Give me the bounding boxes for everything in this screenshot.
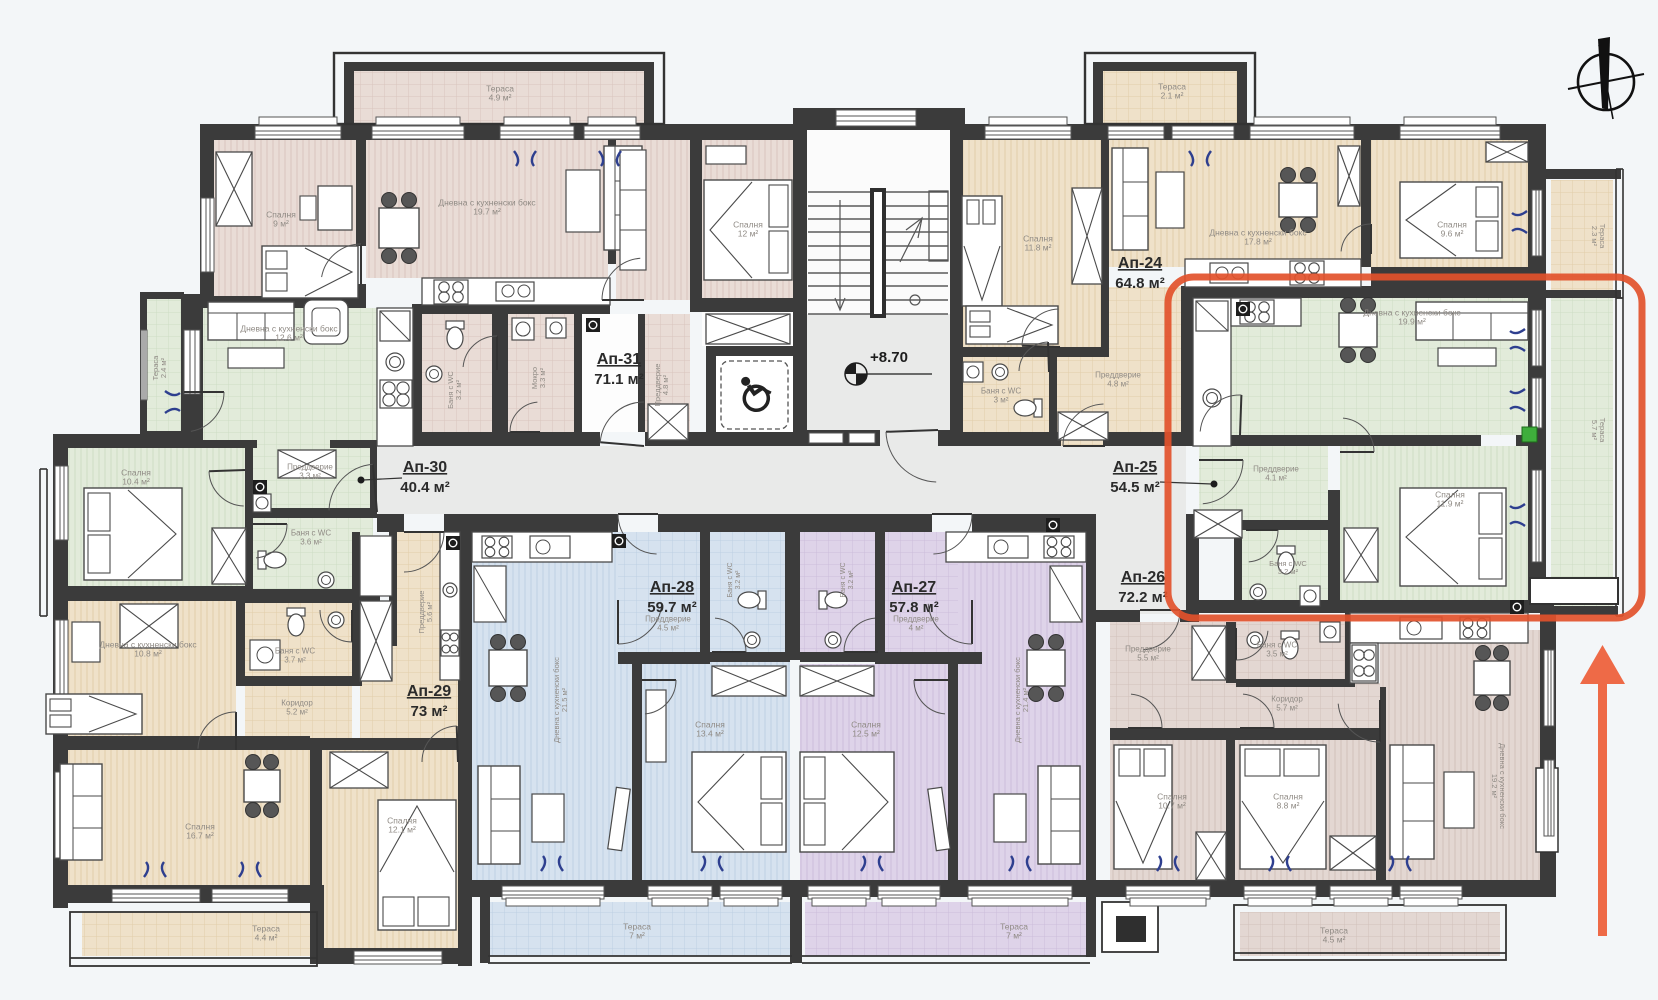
svg-text:Тераса4.4 м²: Тераса4.4 м² (252, 923, 280, 942)
svg-text:73 м²: 73 м² (411, 703, 448, 720)
svg-text:Спалня8.8 м²: Спалня8.8 м² (1273, 791, 1303, 810)
svg-text:Спалня12.1 м²: Спалня12.1 м² (387, 815, 417, 834)
svg-text:Спалня12.5 м²: Спалня12.5 м² (851, 719, 881, 738)
svg-text:64.8 м²: 64.8 м² (1115, 275, 1164, 292)
svg-text:Спалня10.7 м²: Спалня10.7 м² (1157, 791, 1187, 810)
svg-text:57.8 м²: 57.8 м² (889, 599, 938, 616)
svg-text:Спалня11.8 м²: Спалня11.8 м² (1023, 233, 1053, 252)
svg-text:72.2 м²: 72.2 м² (1118, 589, 1167, 606)
svg-text:Тераса5.7 м²: Тераса5.7 м² (1590, 418, 1607, 443)
svg-text:Спалня13.4 м²: Спалня13.4 м² (695, 719, 725, 738)
svg-text:Мокро3.3 м²: Мокро3.3 м² (530, 367, 547, 389)
svg-text:40.4 м²: 40.4 м² (400, 479, 449, 496)
svg-text:Тераса4.9 м²: Тераса4.9 м² (486, 83, 514, 102)
svg-text:Тераса2.1 м²: Тераса2.1 м² (1158, 81, 1186, 100)
svg-text:Ап-29: Ап-29 (407, 683, 451, 700)
svg-text:Тераса2.3 м²: Тераса2.3 м² (1590, 224, 1607, 249)
svg-text:Ап-26: Ап-26 (1121, 569, 1165, 586)
svg-text:Спалня16.7 м²: Спалня16.7 м² (185, 821, 215, 840)
svg-text:Спалня11.9 м²: Спалня11.9 м² (1435, 489, 1465, 508)
svg-text:54.5 м²: 54.5 м² (1110, 479, 1159, 496)
svg-text:59.7 м²: 59.7 м² (647, 599, 696, 616)
svg-text:Тераса4.5 м²: Тераса4.5 м² (1320, 925, 1348, 944)
svg-text:Ап-30: Ап-30 (403, 459, 447, 476)
svg-text:Ап-28: Ап-28 (650, 579, 694, 596)
svg-text:Спалня9.6 м²: Спалня9.6 м² (1437, 219, 1467, 238)
svg-text:Ап-24: Ап-24 (1118, 255, 1162, 272)
svg-text:Ап-27: Ап-27 (892, 579, 936, 596)
svg-text:Ап-25: Ап-25 (1113, 459, 1157, 476)
svg-text:+8.70: +8.70 (870, 349, 908, 366)
svg-text:Тераса2.4 м²: Тераса2.4 м² (151, 355, 168, 380)
svg-text:Ап-31: Ап-31 (597, 351, 641, 368)
svg-text:Спалня10.4 м²: Спалня10.4 м² (121, 467, 151, 486)
svg-text:71.1 м²: 71.1 м² (594, 371, 643, 388)
